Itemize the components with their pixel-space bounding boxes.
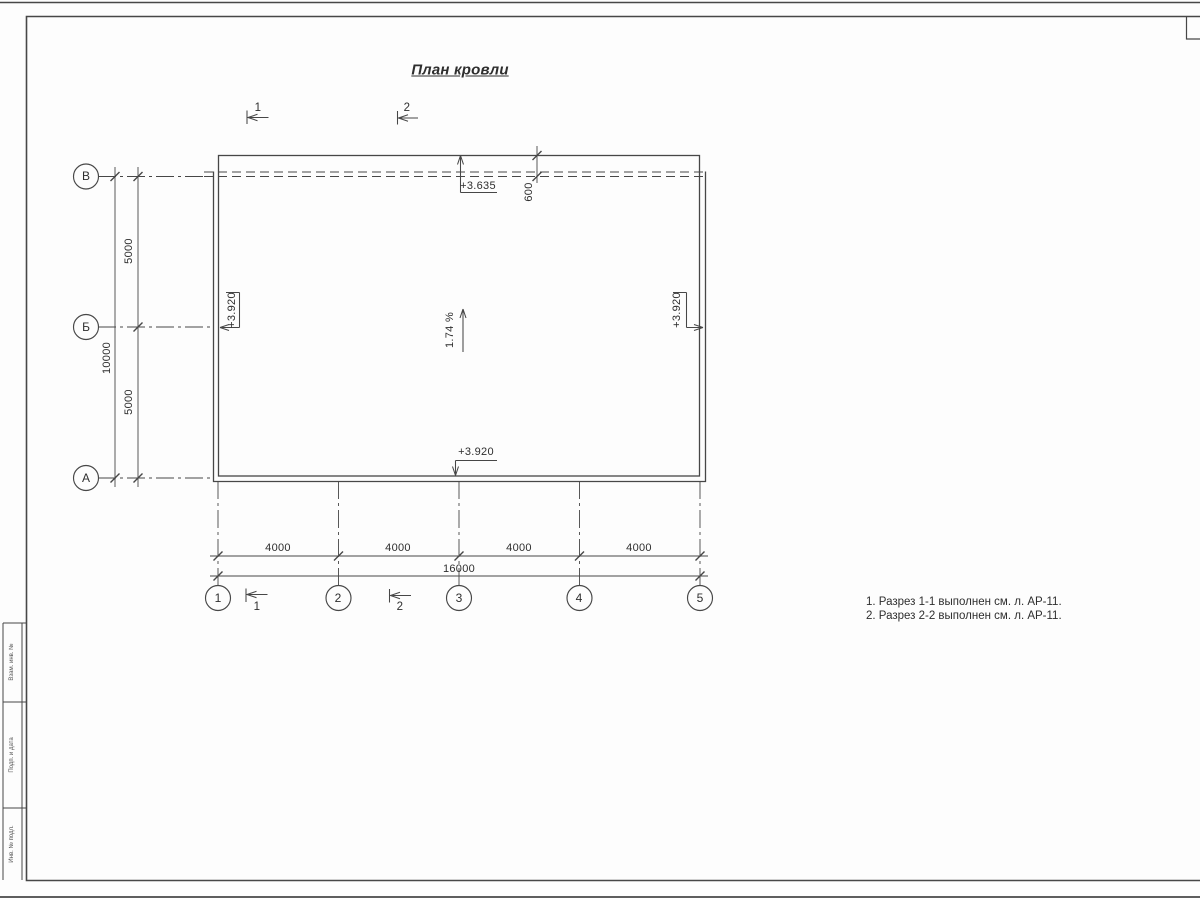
hidden-wall-dashed-lines [204,172,705,177]
axis-row-a: А [82,471,90,485]
section-mark-bottom-1 [246,589,268,603]
stamp-label-2: Подп. и дата [9,737,15,772]
section-marks [246,111,418,603]
note-line-1: 1. Разрез 1-1 выполнен см. л. АР-11. [866,596,1062,608]
dim-4000-4: 4000 [626,542,652,554]
dimension-ticks [111,151,705,581]
dimension-lines [115,146,708,576]
elevation-left: +3.920 [226,292,238,328]
stamp-label-1: Взам. инв. № [9,643,15,680]
sheet-frame [0,3,1200,898]
stamp-label-3: Инв. № подл. [9,825,15,862]
drawing-title: План кровли [411,62,508,79]
axis-row-b: Б [82,320,90,334]
slope-arrow [460,309,466,352]
section-num-bottom-1: 1 [254,601,261,613]
section-num-top-2: 2 [404,102,411,114]
building-outline [214,156,706,482]
axis-lines [98,177,700,586]
axis-row-v: В [82,169,90,183]
section-num-bottom-2: 2 [397,601,404,613]
dim-5000-top: 5000 [123,238,135,264]
section-num-top-1: 1 [255,102,262,114]
dim-10000: 10000 [101,342,113,374]
drawing-sheet: План кровли 4000 4000 4000 4000 16000 50… [0,0,1200,900]
elevation-leaders [220,156,703,476]
elevation-right: +3.920 [671,292,683,328]
dim-5000-bottom: 5000 [123,389,135,415]
elevation-bottom-arrow [453,461,498,476]
dim-4000-1: 4000 [265,542,291,554]
dim-16000: 16000 [443,563,475,575]
slope-label: 1.74 % [444,312,456,348]
axis-col-1: 1 [215,591,222,605]
axis-col-4: 4 [576,591,583,605]
axis-col-5: 5 [697,591,704,605]
axis-col-2: 2 [335,591,342,605]
elevation-bottom: +3.920 [458,446,494,458]
elevation-top: +3.635 [460,180,496,192]
axis-col-3: 3 [456,591,463,605]
dim-600: 600 [523,182,535,201]
roof-plan-drawing [0,0,1200,900]
dim-4000-2: 4000 [385,542,411,554]
note-line-2: 2. Разрез 2-2 выполнен см. л. АР-11. [866,610,1062,622]
dim-4000-3: 4000 [506,542,532,554]
